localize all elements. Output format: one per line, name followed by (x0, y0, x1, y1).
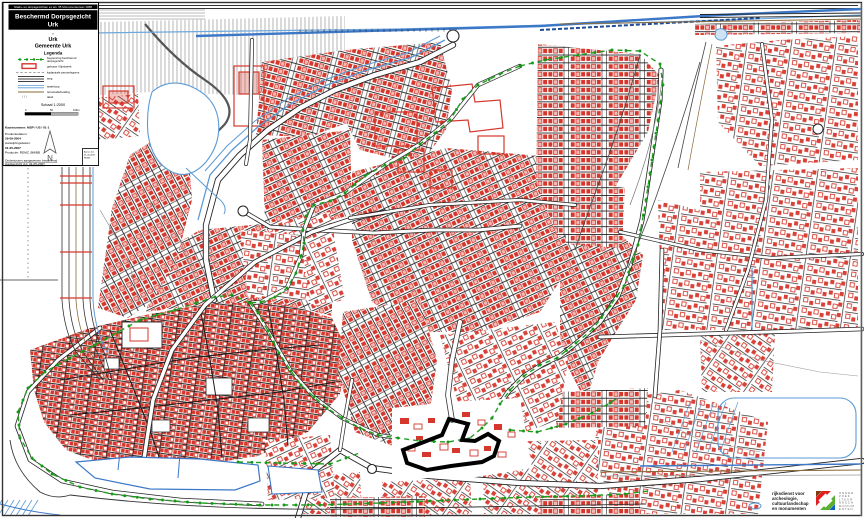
svg-text:Kaartnummer: MSP / US / 01-1: Kaartnummer: MSP / US / 01-1 (5, 126, 50, 130)
svg-text:01-05-2007: 01-05-2007 (84, 155, 96, 157)
svg-text:ENTEN: ENTEN (839, 507, 853, 511)
svg-text:100m: 100m (73, 108, 80, 112)
svg-text:29-09-2004: 29-09-2004 (5, 137, 21, 141)
svg-text:Productiedatum:: Productiedatum: (5, 132, 28, 136)
svg-text:talud: talud (47, 95, 54, 99)
svg-text:Gemeente Urk: Gemeente Urk (35, 44, 72, 50)
svg-text:Urk: Urk (49, 37, 58, 43)
svg-text:RDMZ: RDMZ (84, 158, 91, 160)
svg-text:Schaal 1:2000: Schaal 1:2000 (41, 103, 65, 107)
svg-text:waterloop: waterloop (47, 85, 60, 89)
svg-text:en monumenten: en monumenten (772, 506, 806, 511)
svg-text:! ! !: ! ! ! (22, 95, 27, 99)
svg-text:01-05-2007: 01-05-2007 (5, 146, 21, 150)
svg-text:Productie: RDMZ, BM/BB: Productie: RDMZ, BM/BB (5, 151, 40, 155)
svg-text:Legenda: Legenda (44, 51, 63, 56)
svg-text:kadastrale perceelsgrens: kadastrale perceelsgrens (47, 71, 80, 75)
svg-text:stadsgezicht d.d. 01-05-2007: stadsgezicht d.d. 01-05-2007 (5, 162, 45, 166)
svg-text:dorpsgezicht: dorpsgezicht (47, 59, 64, 63)
svg-text:Aanwijzingsdatum:: Aanwijzingsdatum: (5, 141, 31, 145)
svg-text:terreinafscheiding: terreinafscheiding (47, 90, 70, 94)
svg-text:weg: weg (47, 77, 53, 81)
svg-text:gebouw i fijnstwerk: gebouw i fijnstwerk (47, 65, 72, 69)
svg-text:Beschermd Dorpsgezicht: Beschermd Dorpsgezicht (15, 14, 92, 21)
svg-text:Aanw. d.d.: Aanw. d.d. (84, 151, 95, 154)
svg-text:Stads- en dorpsgezichten ex ar: Stads- en dorpsgezichten ex art. 35 Monu… (14, 5, 92, 9)
svg-text:Urk: Urk (48, 22, 59, 29)
svg-text:N: N (47, 154, 53, 163)
